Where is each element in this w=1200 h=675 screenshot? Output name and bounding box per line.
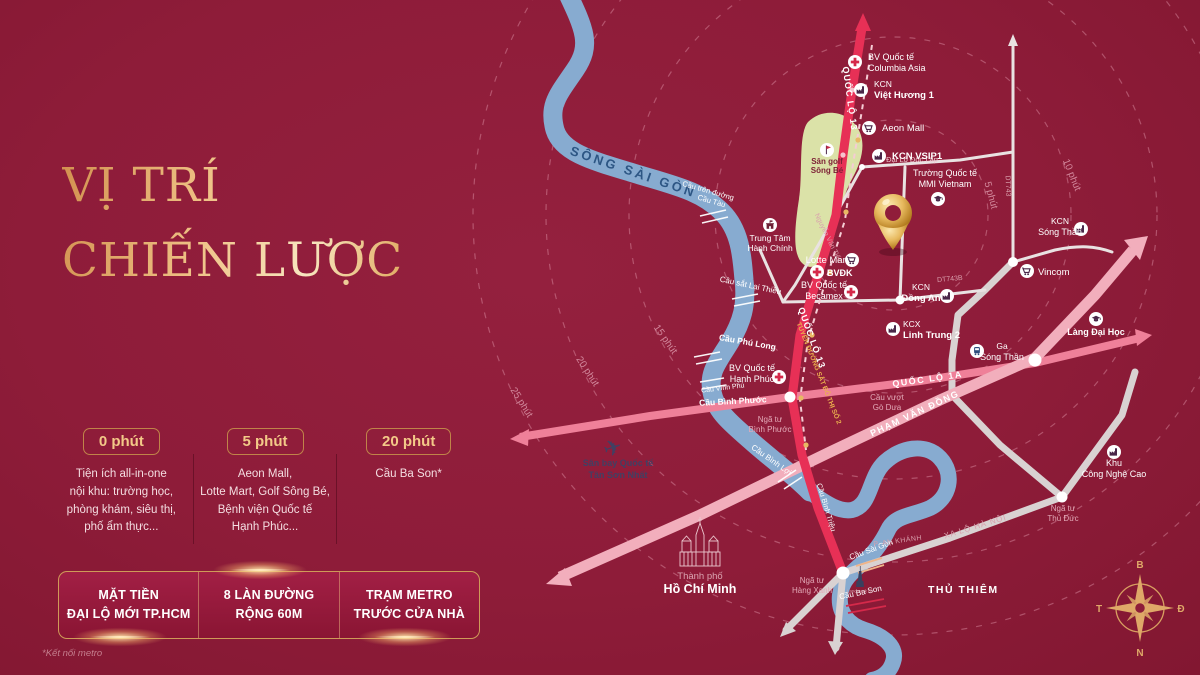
stat-20-phut: 20 phút Cầu Ba Son* [337, 428, 480, 544]
poi-thuthiem: THỦ THIÊM [928, 583, 999, 596]
junction-godua-l1: Cầu vượt [870, 393, 905, 402]
poi-kcnc-l1: Khu [1106, 458, 1122, 468]
stat-badge: 20 phút [366, 428, 451, 455]
junction-godua-l2: Gò Dưa [873, 403, 902, 412]
junction-hangxanh-l2: Hàng Xanh [792, 586, 832, 595]
stat-badge: 0 phút [83, 428, 160, 455]
school-icon [931, 192, 945, 206]
factory-icon [854, 83, 868, 97]
poi-landmark: Landmark 81 [847, 589, 874, 594]
title-line-2: CHIẾN LƯỢC [62, 223, 403, 298]
river-label: SÔNG SÀI GÒN [568, 143, 698, 200]
hospital-icon [810, 265, 824, 279]
factory-icon [886, 322, 900, 336]
poi-aeon: Aeon Mall [882, 123, 924, 134]
golf-flag-icon [820, 143, 834, 157]
stat-description: Aeon Mall, Lotte Mart, Golf Sông Bé, Bện… [200, 466, 331, 537]
compass-east: Đ [1177, 604, 1184, 615]
compass-west: T [1096, 604, 1102, 615]
strategic-location-infographic: 5 phút 10 phút 15 phút 20 phút 25 phút S… [0, 0, 1200, 675]
poi-tthc-l2: Hành Chính [747, 243, 793, 253]
ring-label-10min: 10 phút [1060, 158, 1083, 193]
factory-icon [1107, 445, 1121, 459]
ribbon-cell-mat-tien: MẶT TIỀN ĐẠI LỘ MỚI TP.HCM [59, 572, 198, 638]
mall-icon [1020, 264, 1034, 278]
poi-viethuong-l2: Việt Hương 1 [874, 90, 935, 101]
poi-viethuong-l1: KCN [874, 79, 892, 89]
junction-thuduc-l2: Thủ Đức [1047, 514, 1078, 523]
poi-linhtrung-l1: KCX [903, 319, 921, 329]
road-arrow [510, 429, 529, 446]
ring-label-20min: 20 phút [573, 355, 601, 389]
compass-south: N [1136, 648, 1143, 659]
poi-kcnsongthan-l1: KCN [1051, 216, 1069, 226]
project-location-pin [874, 194, 912, 256]
xlhn-label: XA LỘ HÀ NỘI [943, 513, 1008, 541]
poi-bvdk: BVĐK [827, 268, 853, 278]
junction-hangxanh-l1: Ngã tư [800, 576, 825, 585]
stat-description: Tiện ích all-in-one nội khu: trường học,… [56, 466, 187, 537]
road-arrow [1135, 329, 1152, 346]
ring-label-15min: 15 phút [651, 323, 679, 357]
poi-kcnc-l2: Công Nghệ Cao [1082, 469, 1147, 479]
stat-0-phut: 0 phút Tiện ích all-in-one nội khu: trườ… [50, 428, 193, 544]
admin-building-icon [763, 218, 777, 232]
poi-dongan-l1: KCN [912, 282, 930, 292]
ribbon-cell-metro: TRẠM METRO TRƯỚC CỬA NHÀ [339, 572, 479, 638]
school-icon [1089, 312, 1103, 326]
page-title: VỊ TRÍ CHIẾN LƯỢC [62, 148, 403, 298]
poi-tthc-l1: Trung Tâm [749, 233, 790, 243]
junction-binhphuoc-l1: Ngã tư [758, 415, 783, 424]
poi-golf-l2: Sông Bé [811, 166, 844, 175]
ring-label-25min: 25 phút [508, 386, 535, 420]
ring-label-5min: 5 phút [982, 180, 1000, 210]
poi-vsip: KCN VSIP1 [892, 151, 943, 162]
bason-bridge-marks [846, 599, 886, 613]
stat-5-phut: 5 phút Aeon Mall, Lotte Mart, Golf Sông … [194, 428, 337, 544]
travel-time-stats: 0 phút Tiện ích all-in-one nội khu: trườ… [50, 428, 480, 544]
metro-label: TUYẾN ĐƯỜNG SẮT ĐÔ THỊ SỐ 2 [795, 320, 845, 425]
metro-footnote: *Kết nối metro [42, 648, 102, 659]
poi-dongan-l2: Đồng An [901, 293, 940, 304]
poi-city-l2: Hồ Chí Minh [664, 582, 737, 596]
ribbon-cell-8-lan: 8 LÀN ĐƯỜNG RỘNG 60M [198, 572, 338, 638]
poi-mmi-l2: MMI Vietnam [919, 179, 972, 189]
factory-icon [872, 149, 886, 163]
poi-golf-l1: Sân golf [811, 157, 843, 166]
poi-vincom: Vincom [1038, 267, 1070, 278]
compass-north: B [1136, 560, 1143, 571]
poi-gasongthan-l2: Sóng Thần [980, 352, 1024, 362]
road-arrow [828, 641, 843, 655]
poi-city-l1: Thành phố [677, 571, 723, 582]
stat-badge: 5 phút [227, 428, 304, 455]
dt743-label: DT743 [1004, 175, 1012, 196]
feature-ribbon: MẶT TIỀN ĐẠI LỘ MỚI TP.HCM 8 LÀN ĐƯỜNG R… [58, 571, 480, 639]
poi-columbia-l1: BV Quốc tế [868, 52, 914, 62]
poi-columbia-l2: Columbia Asia [868, 63, 926, 73]
poi-hanhphuc-l1: BV Quốc tế [729, 363, 775, 373]
poi-becamex-l2: Becamex [805, 291, 843, 301]
bridge-binhphuoc: Cầu Bình Phước [699, 394, 767, 408]
junction-thuduc-l1: Ngã tư [1051, 504, 1076, 513]
poi-langdaihoc: Làng Đại Học [1067, 327, 1125, 337]
junction-binhphuoc-l2: Bình Phước [748, 425, 791, 434]
mall-icon [862, 121, 876, 135]
poi-linhtrung-l2: Linh Trung 2 [903, 330, 960, 341]
stat-description: Cầu Ba Son* [343, 466, 474, 484]
hospital-icon [848, 55, 862, 69]
poi-airport-l1: Sân bay Quốc tế [583, 458, 655, 468]
poi-mmi-l1: Trường Quốc tế [913, 168, 977, 178]
factory-icon [940, 289, 954, 303]
title-line-1: VỊ TRÍ [62, 148, 403, 223]
poi-becamex-l1: BV Quốc tế [801, 280, 847, 290]
poi-lotte: Lotte Mart [806, 255, 849, 266]
poi-gasongthan-l1: Ga [996, 341, 1008, 351]
poi-airport-l2: Tân Sơn Nhất [589, 470, 648, 480]
compass-rose: B N Đ T [1096, 560, 1185, 659]
poi-kcnsongthan-l2: Sóng Thần [1038, 227, 1082, 237]
road-arrow [1008, 34, 1018, 46]
road-arrow [855, 13, 871, 31]
poi-hanhphuc-l2: Hạnh Phúc [730, 374, 775, 384]
